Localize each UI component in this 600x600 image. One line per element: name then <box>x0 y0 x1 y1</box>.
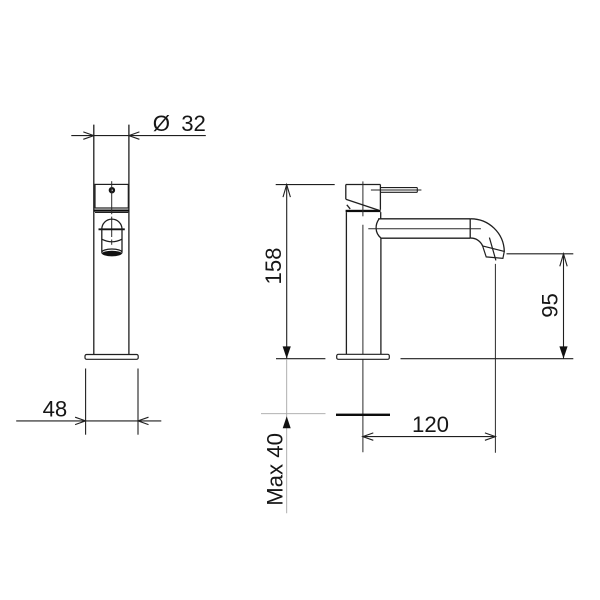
svg-text:Max 40: Max 40 <box>262 433 287 506</box>
svg-text:48: 48 <box>43 396 68 421</box>
svg-text:Ø: Ø <box>153 111 170 136</box>
svg-text:120: 120 <box>412 412 449 437</box>
svg-text:158: 158 <box>261 247 286 284</box>
svg-text:95: 95 <box>538 293 563 318</box>
svg-text:32: 32 <box>181 111 206 136</box>
